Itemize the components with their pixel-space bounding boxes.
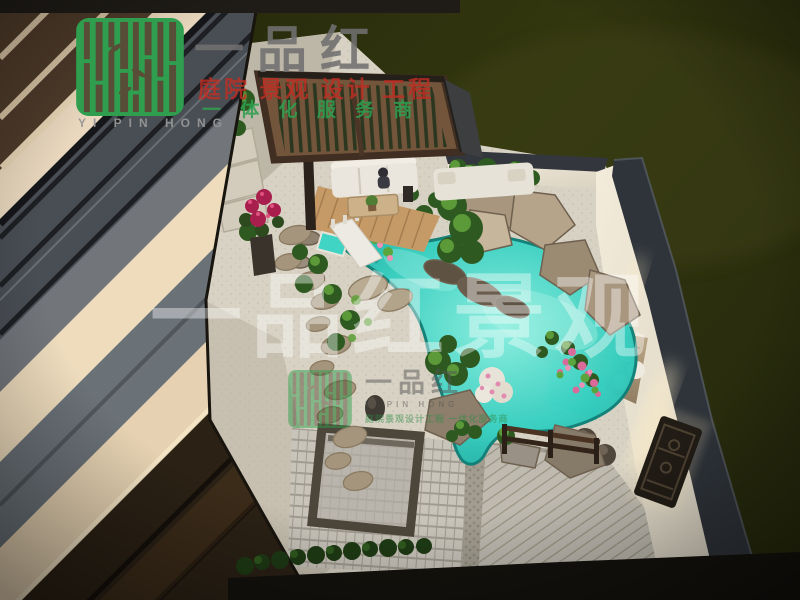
brand-emblem-bamboo-icon <box>76 18 184 116</box>
brand-tagline-integrated: 一 体 化 服 务 商 <box>202 95 419 122</box>
center-watermark: 一品红景观 <box>150 243 655 376</box>
render-canvas: YI PIN HONG 一品红 庭院 景观 设计 工程 一 体 化 服 务 商 … <box>0 0 800 600</box>
small-watermark-badge: 一品红 YI PIN HONG 庭院景观设计工程 一体化服务商 <box>283 370 509 428</box>
small-watermark-name-en: YI PIN HONG <box>365 400 509 409</box>
small-watermark-name-cn: 一品红 <box>365 370 509 397</box>
small-watermark-tagline: 庭院景观设计工程 一体化服务商 <box>365 412 509 425</box>
small-watermark-emblem-icon <box>283 370 357 428</box>
